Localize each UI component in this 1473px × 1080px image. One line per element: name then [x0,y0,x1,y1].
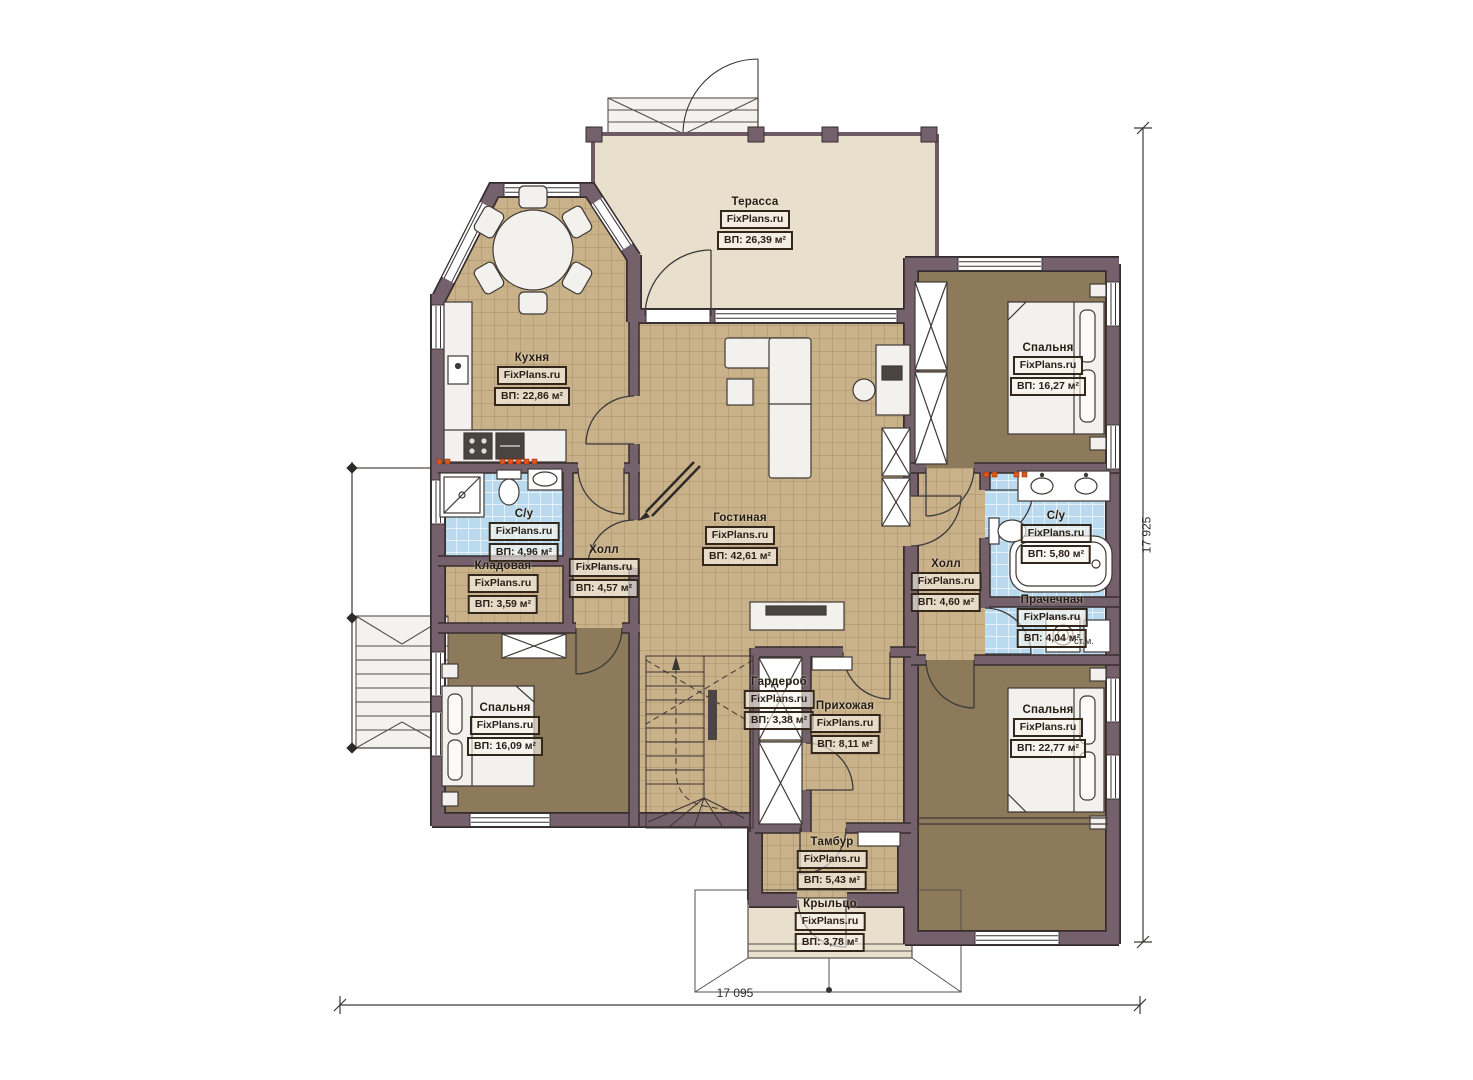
nightstand-icon [442,664,458,678]
stair-post [708,690,717,740]
dimension-width-label: 17 095 [717,986,754,1000]
floor-hall-right [911,468,985,660]
shower-icon [440,473,484,517]
bathtub-icon [1010,536,1112,592]
desk-chair-icon [853,379,875,401]
floor-plan-drawing [0,0,1473,1080]
floor-plan-canvas: Терасса FixPlans.ru ВП: 26,39 м² Кухня F… [0,0,1473,1080]
floor-terrace [592,134,937,316]
window [975,932,1059,945]
wardrobe-icon [915,282,947,464]
terrace-post [586,127,602,142]
entry-steps [608,59,758,134]
sliding-door [646,310,897,323]
partial-text: ст.м. [1074,636,1094,647]
nightstand-icon [1090,437,1106,450]
terrace-post [748,127,764,142]
kitchen-sink-icon [448,356,468,384]
window [1107,282,1120,326]
terrace-post [921,127,937,142]
monitor-icon [882,366,902,380]
stove-icon [464,433,492,459]
window [1107,425,1120,469]
bench-icon [858,832,900,846]
side-table-icon [727,379,753,405]
window [958,258,1042,271]
toilet-icon [497,470,521,505]
double-sink-icon [1018,471,1110,501]
bed-icon [1008,284,1106,450]
nightstand-icon [442,792,458,806]
sink-icon [528,469,562,490]
floor-storage [438,561,568,628]
window [1107,678,1120,722]
window [1107,755,1120,799]
wardrobe-icon [502,634,566,658]
bed-icon [1008,668,1106,829]
shoe-shelf-icon [812,657,852,670]
nightstand-icon [1090,284,1106,297]
nightstand-icon [1090,668,1106,681]
terrace-post [822,127,838,142]
window [432,305,445,349]
floor-entry-hall [806,652,911,828]
window [470,814,550,827]
toilet-icon [989,518,1026,544]
tv-stand-icon [750,602,844,630]
dimension-height-label: 17 925 [1139,517,1153,554]
